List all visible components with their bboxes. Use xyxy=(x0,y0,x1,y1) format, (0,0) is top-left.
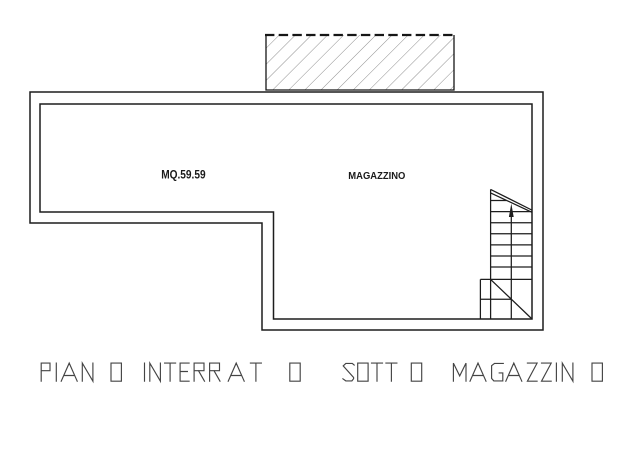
svg-text:MAGAZZINO: MAGAZZINO xyxy=(348,170,405,182)
svg-text:MQ.59.59: MQ.59.59 xyxy=(161,170,205,182)
